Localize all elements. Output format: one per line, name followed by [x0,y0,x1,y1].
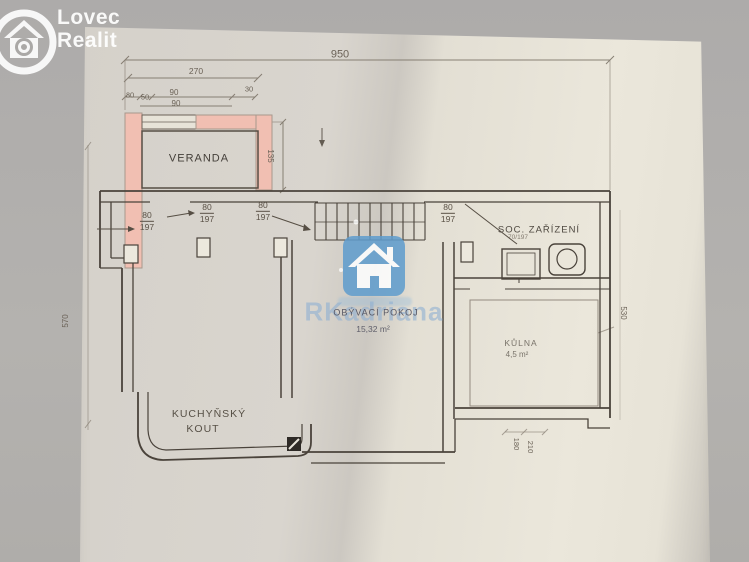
agency-logo-line2: Realit [57,29,117,53]
dim-bottom-210: 210 [526,441,534,454]
staircase [315,203,425,240]
sink [502,249,540,279]
kulna-inner-outline [470,300,598,406]
dim-seg-30b: 30 [245,85,253,93]
dim-seg-90b: 90 [172,100,181,108]
agency-logo: Lovec Realit [0,0,190,90]
dim-seg-50: 50 [141,93,149,101]
door-label-4: 80 197 [441,202,455,224]
door-label-2: 80 197 [200,202,214,224]
room-label-kuchynsky: KUCHYŇSKÝ [172,409,246,420]
door-jambs [124,238,473,263]
dim-right-side: 530 [619,306,627,319]
door-label-3: 80 197 [256,200,270,222]
dim-small-door: 70/197 [508,235,528,242]
watermark-house-tile [343,236,405,296]
dim-seg-30: 30 [126,91,134,99]
room-label-veranda: VERANDA [169,154,229,165]
room-label-obyvaci-pokoj: OBÝVACÍ POKOJ [333,309,418,318]
dim-veranda-depth: 135 [266,149,274,162]
dim-seg-90: 90 [170,89,179,97]
room-label-kout: KOUT [186,424,219,435]
dim-veranda-total: 270 [189,67,203,76]
agency-logo-line1: Lovec [57,6,120,30]
interior-walls [281,240,610,452]
chimney-symbol [287,437,301,451]
dim-left-side: 570 [62,314,70,327]
watermark-house-icon [343,236,405,296]
door-label-1: 80 197 [140,210,154,232]
dim-total-width: 950 [331,50,349,61]
room-area-kulna: 4,5 m² [506,351,529,359]
floorplan-photo: RKadriana VERANDA SOC. ZAŘÍZENÍ OBÝVACÍ … [0,0,749,562]
dim-bottom-180: 180 [512,438,520,451]
room-label-kulna: KŮLNA [504,339,537,348]
room-area-obyvaci-pokoj: 15,32 m² [356,325,390,334]
bathroom-fixtures [502,244,585,283]
